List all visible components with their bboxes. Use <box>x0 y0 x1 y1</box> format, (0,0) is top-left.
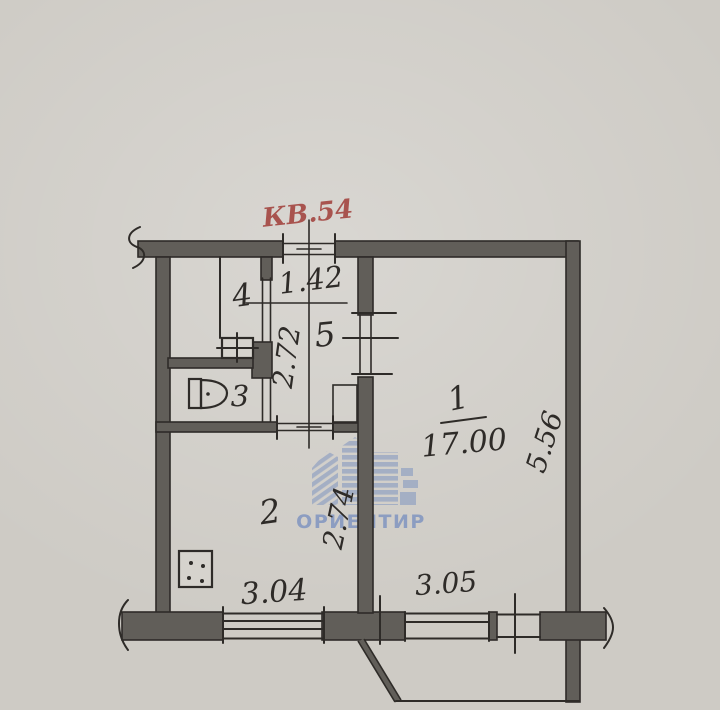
bathroom-top-wall <box>168 358 253 368</box>
left-wall <box>156 257 170 613</box>
room-label-bathroom: 3 <box>231 379 249 413</box>
top-wall-left <box>138 241 283 257</box>
floor-plan-drawing: ОРИЕНТИР <box>0 0 720 710</box>
balcony-door-opening <box>497 594 540 653</box>
living-door-opening <box>343 313 398 374</box>
wall-4-5-top <box>261 257 272 280</box>
top-wall-right <box>335 241 578 257</box>
watermark-building-blocks <box>400 468 418 505</box>
room-label-closet: 4 <box>229 277 255 316</box>
watermark-building-right <box>372 452 398 505</box>
window-kitchen <box>223 607 324 643</box>
apartment-number-label: КВ.54 <box>260 194 355 233</box>
sink-icon <box>217 333 258 362</box>
window-living <box>405 612 489 641</box>
bottom-wall-seg2 <box>322 612 405 640</box>
room-area-underline <box>441 417 486 423</box>
stove-icon <box>179 551 212 587</box>
central-wall-top <box>358 257 373 315</box>
bottom-wall-seg3 <box>489 612 497 640</box>
door-leaf-symbol <box>333 385 357 423</box>
dim-living-depth: 5.56 <box>519 407 570 476</box>
balcony-outline <box>358 639 579 702</box>
living-room-tag: 1 17.00 <box>420 377 509 464</box>
bottom-wall-seg1 <box>122 612 223 640</box>
room-label-hall: 5 <box>312 314 337 355</box>
room-label-kitchen: 2 <box>256 491 283 533</box>
hall-bottom-wall-left <box>156 422 277 432</box>
dim-hall-width: 1.42 <box>277 259 345 301</box>
dim-kitchen-width: 3.04 <box>239 573 308 613</box>
central-wall-bottom <box>358 377 373 613</box>
room-area-living: 17.00 <box>420 422 509 464</box>
bottom-wall-seg4 <box>540 612 606 640</box>
dim-living-width: 3.05 <box>414 565 478 602</box>
room-label-living: 1 <box>444 377 472 418</box>
dim-hall-depth: 2.72 <box>266 324 307 391</box>
scanned-floor-plan: ОРИЕНТИР <box>0 0 720 710</box>
toilet-icon <box>189 379 227 408</box>
